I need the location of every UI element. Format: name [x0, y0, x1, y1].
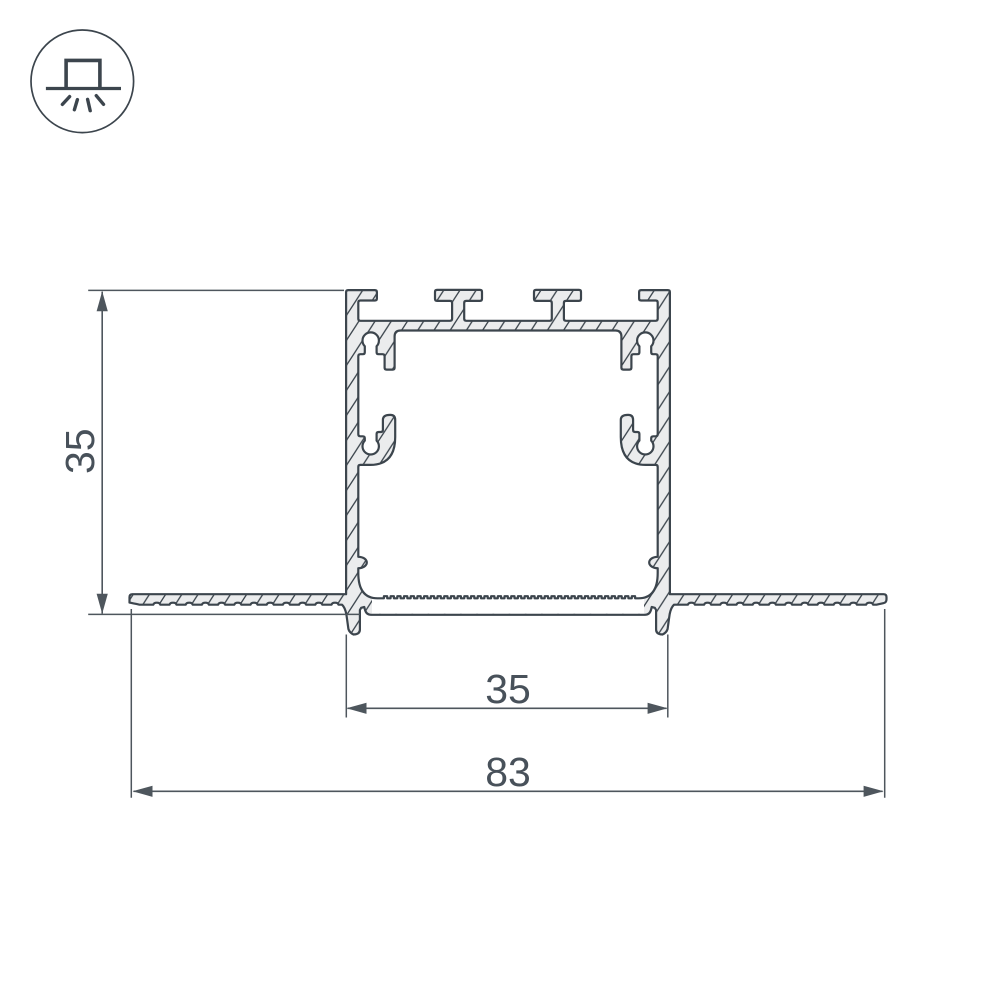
svg-text:35: 35 [57, 428, 103, 474]
svg-text:83: 83 [485, 749, 531, 795]
svg-text:35: 35 [485, 666, 531, 712]
